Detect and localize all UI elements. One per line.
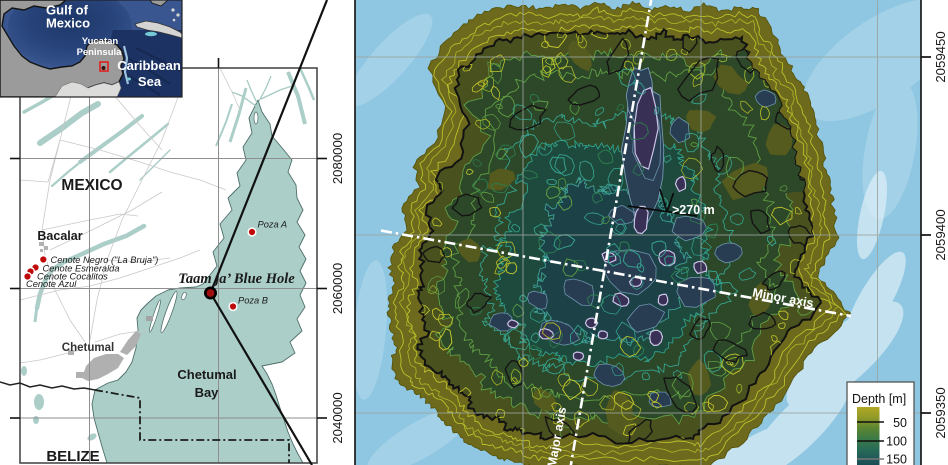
svg-text:2059350: 2059350: [933, 387, 948, 438]
svg-text:Sea: Sea: [138, 74, 162, 89]
svg-text:BELIZE: BELIZE: [46, 448, 99, 465]
svg-text:Poza B: Poza B: [238, 296, 268, 306]
svg-text:2060000: 2060000: [330, 263, 345, 314]
svg-text:Chetumal: Chetumal: [62, 342, 114, 354]
svg-text:Cenote Azul: Cenote Azul: [26, 279, 77, 289]
svg-text:MEXICO: MEXICO: [61, 177, 122, 194]
svg-text:2080000: 2080000: [330, 133, 345, 184]
svg-text:Chetumal: Chetumal: [177, 367, 236, 382]
svg-text:2059450: 2059450: [933, 31, 948, 82]
svg-text:Taam ja’ Blue Hole: Taam ja’ Blue Hole: [178, 271, 295, 287]
svg-text:Bay: Bay: [195, 385, 220, 400]
svg-text:Caribbean: Caribbean: [117, 58, 181, 73]
svg-text:2040000: 2040000: [330, 392, 345, 443]
svg-text:Depth [m]: Depth [m]: [852, 392, 906, 406]
svg-text:Poza A: Poza A: [258, 220, 288, 230]
svg-text:100: 100: [886, 435, 907, 449]
svg-text:Mexico: Mexico: [46, 16, 90, 31]
svg-text:Yucatan: Yucatan: [82, 36, 119, 47]
svg-text:>270 m: >270 m: [672, 203, 715, 217]
svg-text:50: 50: [893, 416, 907, 430]
svg-text:Peninsula: Peninsula: [77, 47, 123, 58]
svg-text:Bacalar: Bacalar: [37, 229, 82, 243]
svg-text:2059400: 2059400: [933, 209, 948, 260]
svg-text:150: 150: [886, 453, 907, 465]
